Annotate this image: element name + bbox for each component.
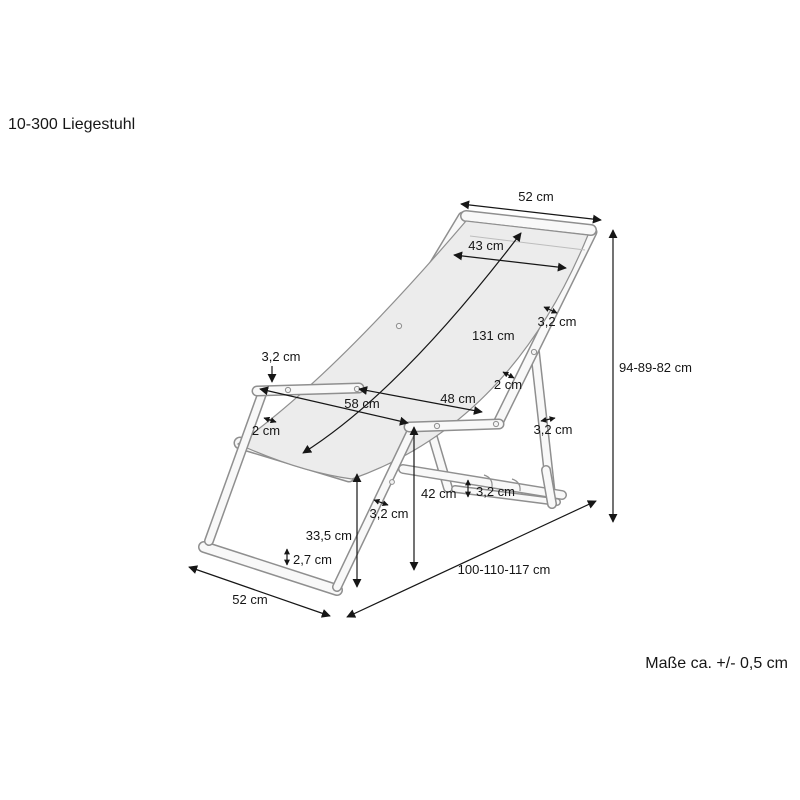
dim-label-armrest-span-outer: 58 cm xyxy=(344,396,379,411)
dim-label-back-rail-thickness: 3,2 cm xyxy=(537,314,576,329)
deckchair-diagram: 52 cm 43 cm 131 cm 94-89-82 cm 3,2 cm 2 … xyxy=(0,0,800,800)
dim-label-rear-leg-thickness: 3,2 cm xyxy=(533,422,572,437)
dim-label-fabric-length: 131 cm xyxy=(472,328,515,343)
dim-label-seat-front-height: 33,5 cm xyxy=(306,528,352,543)
dimension-drawing-page: 10-300 Liegestuhl xyxy=(0,0,800,800)
dim-label-fabric-hem-right: 2 cm xyxy=(494,377,522,392)
dim-label-fabric-width: 43 cm xyxy=(468,238,503,253)
dim-label-back-top-width: 52 cm xyxy=(518,189,553,204)
dim-label-front-leg-thickness: 3,2 cm xyxy=(369,506,408,521)
dim-label-armrest-thickness: 3,2 cm xyxy=(261,349,300,364)
dim-label-depth-range: 100-110-117 cm xyxy=(458,562,551,577)
bolt xyxy=(531,349,536,354)
deckchair-drawing xyxy=(204,216,592,590)
bolt xyxy=(493,421,498,426)
bolt xyxy=(390,480,395,485)
tolerance-note: Maße ca. +/- 0,5 cm xyxy=(645,655,788,673)
bolt xyxy=(285,387,290,392)
dim-label-base-rail-thickness: 2,7 cm xyxy=(293,552,332,567)
bolt xyxy=(434,423,439,428)
dim-label-fabric-hem-left: 2 cm xyxy=(252,423,280,438)
bolt xyxy=(354,386,359,391)
dim-label-armrest-span-inner: 48 cm xyxy=(440,391,475,406)
dim-label-height-range: 94-89-82 cm xyxy=(619,360,692,375)
bolt xyxy=(396,323,401,328)
dim-label-adjust-rail-thickness: 3,2 cm xyxy=(476,484,515,499)
dim-label-armrest-height: 42 cm xyxy=(421,486,456,501)
dim-label-base-width: 52 cm xyxy=(232,592,267,607)
